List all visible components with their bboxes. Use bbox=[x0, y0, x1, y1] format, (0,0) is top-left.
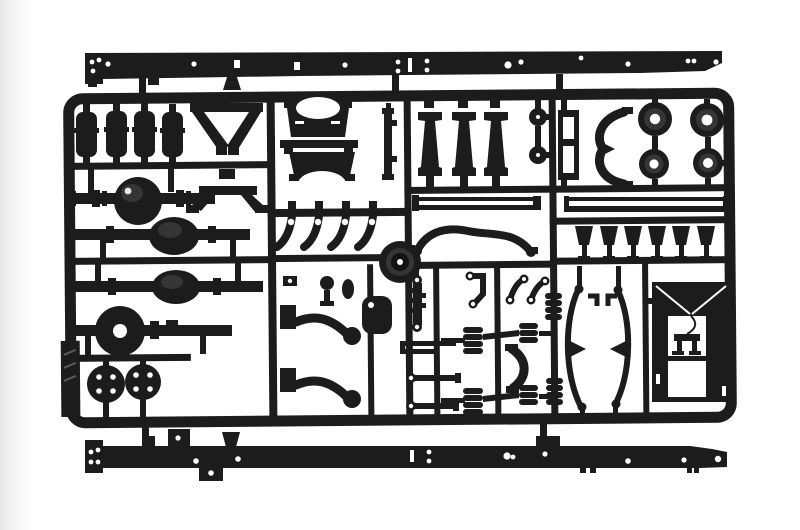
bellow bbox=[519, 385, 538, 405]
rear-panel bbox=[648, 282, 730, 402]
part-stem bbox=[230, 240, 236, 258]
sprue-scene bbox=[0, 0, 800, 530]
runner-horizontal bbox=[405, 261, 555, 269]
part-stem bbox=[85, 336, 91, 356]
part-stem bbox=[103, 402, 109, 419]
part-stem bbox=[200, 336, 206, 354]
highlight-spec bbox=[125, 188, 132, 195]
part-stem bbox=[235, 262, 241, 282]
part-stem bbox=[88, 166, 94, 194]
ladder-bracket bbox=[558, 98, 579, 190]
photo-vignette bbox=[0, 0, 40, 530]
bellow bbox=[519, 323, 538, 343]
part-stem bbox=[95, 262, 101, 282]
part-stem bbox=[168, 166, 174, 192]
tank-pot bbox=[362, 296, 392, 334]
mold-tab bbox=[61, 341, 81, 417]
sprue-photo bbox=[0, 0, 800, 530]
part-stem bbox=[140, 399, 146, 418]
part-stem bbox=[100, 240, 106, 258]
